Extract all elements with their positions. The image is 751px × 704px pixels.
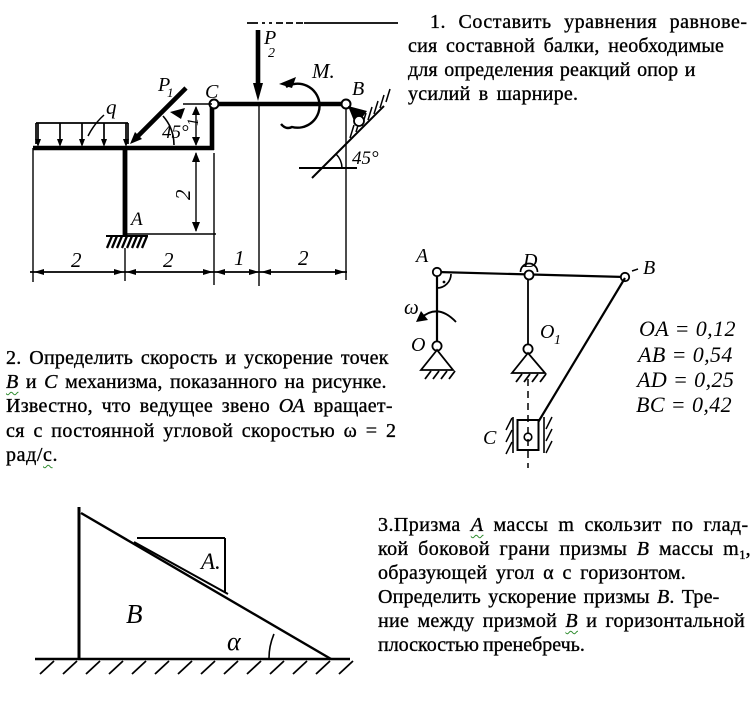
svg-text:O: O — [540, 321, 554, 343]
svg-text:M.: M. — [311, 59, 335, 83]
svg-text:A: A — [414, 245, 429, 267]
svg-text:OA = 0,12: OA = 0,12 — [639, 316, 736, 341]
svg-text:2: 2 — [268, 46, 275, 61]
svg-text:AD = 0,25: AD = 0,25 — [635, 367, 734, 392]
svg-text:2: 2 — [71, 248, 82, 272]
svg-text:q: q — [106, 95, 117, 119]
svg-text:B: B — [643, 257, 655, 279]
svg-text:α: α — [227, 627, 242, 656]
svg-text:D: D — [522, 250, 538, 272]
svg-text:1: 1 — [554, 333, 561, 348]
svg-text:C: C — [483, 427, 497, 449]
svg-text:1: 1 — [234, 246, 245, 270]
svg-text:1: 1 — [167, 85, 174, 100]
svg-text:BC = 0,42: BC = 0,42 — [636, 392, 732, 417]
svg-text:2: 2 — [163, 248, 174, 272]
svg-text:B: B — [352, 78, 364, 100]
svg-text:45°: 45° — [352, 148, 379, 169]
svg-text:2: 2 — [171, 189, 195, 200]
svg-text:AB = 0,54: AB = 0,54 — [636, 342, 733, 367]
svg-text:O: O — [411, 334, 425, 356]
svg-text:ω: ω — [404, 295, 419, 319]
svg-text:A: A — [129, 209, 143, 230]
svg-text:C: C — [205, 81, 219, 103]
svg-text:B: B — [126, 599, 143, 629]
svg-text:A.: A. — [199, 549, 221, 574]
svg-text:1: 1 — [185, 118, 202, 126]
svg-text:2: 2 — [298, 246, 309, 270]
